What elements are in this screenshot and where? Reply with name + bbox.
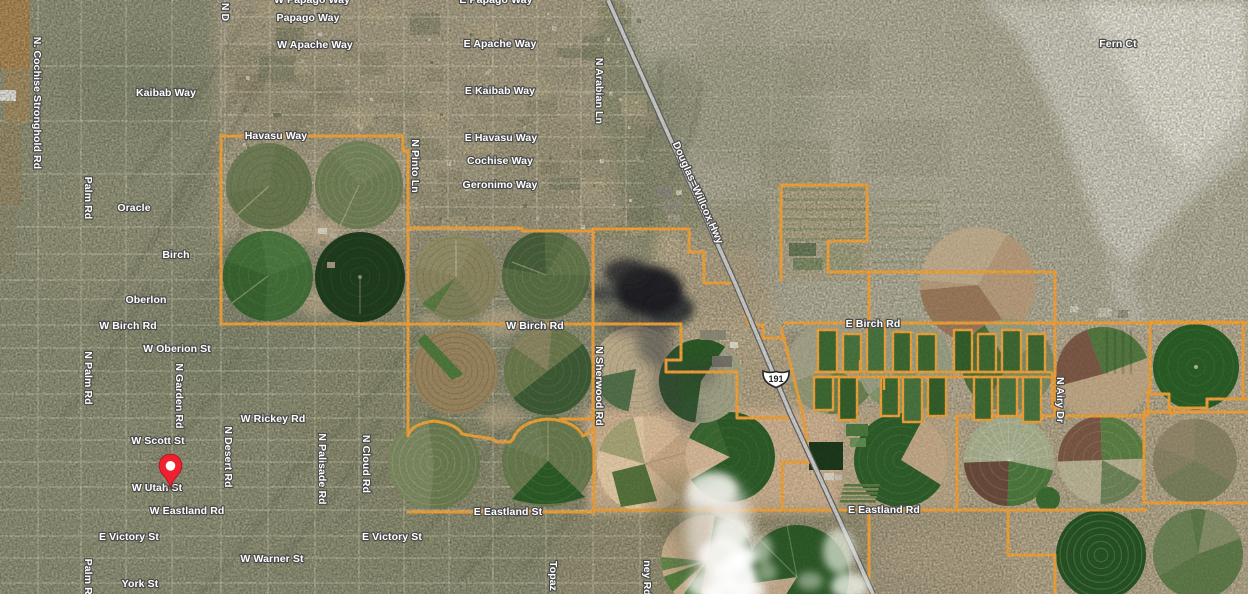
svg-text:W Birch Rd: W Birch Rd [506, 320, 564, 332]
svg-text:Oracle: Oracle [117, 202, 150, 214]
svg-text:Geronimo Way: Geronimo Way [463, 179, 538, 191]
svg-text:Topaz: Topaz [547, 561, 559, 591]
svg-text:N Airy Dr: N Airy Dr [1054, 377, 1066, 423]
svg-text:Havasu Way: Havasu Way [245, 130, 308, 142]
svg-text:E Papago Way: E Papago Way [459, 0, 532, 6]
svg-text:N Desert Rd: N Desert Rd [222, 426, 234, 487]
svg-text:N Sherwood Rd: N Sherwood Rd [593, 346, 605, 425]
svg-text:W Warner St: W Warner St [240, 553, 304, 565]
svg-text:W Birch Rd: W Birch Rd [99, 320, 157, 332]
svg-text:E Apache Way: E Apache Way [464, 38, 537, 50]
svg-text:Kaibab Way: Kaibab Way [136, 87, 196, 99]
svg-text:E Victory St: E Victory St [362, 531, 422, 543]
svg-text:Oberlon: Oberlon [126, 294, 167, 306]
svg-text:E Havasu Way: E Havasu Way [465, 132, 538, 144]
svg-text:E Eastland Rd: E Eastland Rd [848, 504, 920, 516]
svg-text:N. Cochise Stronghold Rd: N. Cochise Stronghold Rd [31, 37, 43, 169]
svg-text:Birch: Birch [162, 249, 189, 261]
svg-text:N Pinto Ln: N Pinto Ln [409, 139, 421, 193]
svg-text:N Arabian Ln: N Arabian Ln [593, 58, 605, 124]
svg-text:191: 191 [769, 374, 784, 384]
svg-text:Palm Rd: Palm Rd [82, 559, 94, 594]
svg-text:N Garden Rd: N Garden Rd [173, 363, 185, 428]
svg-text:E Eastland St: E Eastland St [474, 506, 543, 518]
svg-text:W Apache Way: W Apache Way [277, 39, 353, 51]
svg-text:W Papago Way: W Papago Way [274, 0, 350, 6]
svg-text:Fern Ct: Fern Ct [1099, 38, 1137, 50]
svg-text:W Scott St: W Scott St [131, 435, 185, 447]
svg-text:N Cloud Rd: N Cloud Rd [360, 435, 372, 493]
svg-text:E Birch Rd: E Birch Rd [846, 318, 901, 330]
svg-text:Palm Rd: Palm Rd [82, 177, 94, 220]
svg-text:York St: York St [122, 578, 159, 590]
svg-text:ney Rd: ney Rd [641, 560, 653, 594]
svg-text:N Palisade Rd: N Palisade Rd [316, 433, 328, 504]
svg-text:W Rickey Rd: W Rickey Rd [241, 413, 306, 425]
svg-text:Cochise Way: Cochise Way [467, 155, 533, 167]
svg-text:Papago Way: Papago Way [276, 12, 339, 24]
svg-text:N Palm Rd: N Palm Rd [82, 351, 94, 404]
svg-text:N D: N D [219, 3, 231, 22]
svg-text:W Eastland Rd: W Eastland Rd [150, 505, 225, 517]
svg-text:E Victory St: E Victory St [99, 531, 159, 543]
svg-text:W Oberion St: W Oberion St [143, 343, 211, 355]
svg-text:E Kaibab Way: E Kaibab Way [465, 85, 535, 97]
